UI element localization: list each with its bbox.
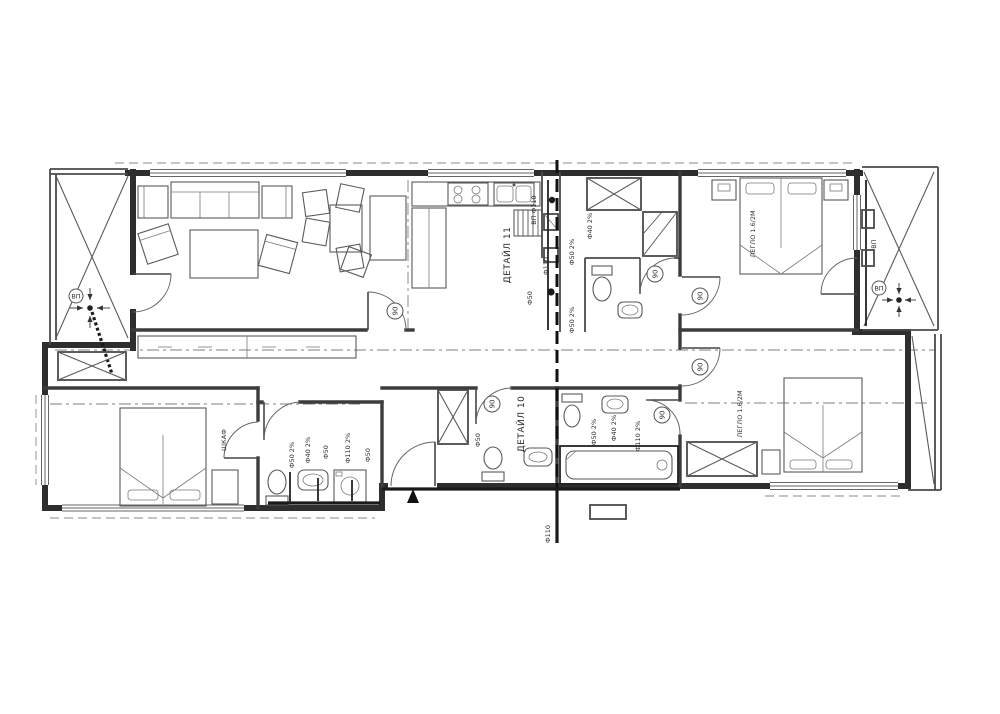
riser-label: ВП Ф110 [530,195,538,224]
sink-icon [298,470,328,490]
washing-machine-icon [334,470,366,502]
door-wc: 90 [640,258,676,294]
pipe-label: Ф40 2% [610,415,618,441]
pipe-shaft [542,172,560,332]
sink-icon [602,396,628,413]
door-bedroom-bottom-right: 90 [682,348,720,386]
entry-hall [587,178,677,256]
pipe-label: Ф40 2% [586,213,594,239]
pipe-label: Ф50 [322,445,330,459]
floor-drain-icon [882,283,916,317]
door-balcony [821,258,857,294]
nightstand [762,450,780,474]
balcony-right-lower [908,334,941,490]
living-room: 90 [133,182,413,358]
bed-size-label: ЛЕГЛО 1.6/2М [736,390,744,437]
door-bathroom-right: 90 [646,400,680,434]
low-cabinet [138,336,356,358]
double-bed: ЛЕГЛО 1.6/2М [736,378,862,472]
armchair [262,186,292,218]
nightstand [824,180,848,200]
terrace-left: ВП [50,169,128,380]
door-terrace [133,274,171,312]
door-width-label: 90 [697,363,705,372]
bathroom-right: 90 Ф50 2% Ф40 2% Ф110 2% [560,394,680,484]
windows [40,167,898,514]
sink-icon [524,448,552,466]
side-chair [258,234,297,273]
wc-room: 90 [585,258,680,332]
wardrobe [687,442,757,476]
desk [341,196,406,277]
stove-icon [448,183,488,205]
door-bedroom-bottom-left [224,422,258,458]
wardrobe-label: ШКАФ [220,429,228,451]
pipe-label: Ф110 [544,525,552,543]
terrace-riser-label: ВП [71,293,80,301]
pipe-label: Ф40 2% [304,437,312,463]
pipe-label: Ф50 2% [568,307,576,333]
pipe-label: Ф50 [474,433,482,447]
bedroom-top-right: 90 ЛЕГЛО 1.6/2М [680,172,857,348]
pipe-label: Ф50 [526,291,534,305]
floor-plan-drawing: ВП ВП [0,0,1000,714]
dresser [212,470,238,504]
door-bathroom-center: 90 [476,388,512,424]
double-bed: ЛЕГЛО 1.6/2М [740,178,822,274]
detail-11-label: ДЕТАЙЛ 11 [501,227,513,284]
double-bed [120,408,206,506]
pipe-label: Ф110 2% [634,421,642,451]
door-living: 90 [368,292,406,330]
door-width-label: 90 [489,400,497,409]
door-width-label: 90 [697,292,705,301]
toilet-icon [592,266,612,301]
nightstand [712,180,736,200]
bathroom-center: 90 ДЕТАЙЛ 10 [476,388,557,486]
exterior-walls [45,172,908,508]
dining-table [302,184,364,272]
sink-icon [618,302,642,318]
bed-size-label: ЛЕГЛО 1.6/2М [749,210,757,257]
door-bedroom-top-right: 90 [682,277,720,315]
door-width-label: 90 [652,270,660,279]
kitchen: ДЕТАЙЛ 11 [412,182,542,288]
drawing-page: ВП ВП [0,0,1000,714]
toilet-icon [562,394,582,427]
riser-label: ВП [870,239,878,248]
planter-box [58,352,126,380]
bedroom-bottom-left: ШКАФ [45,388,258,508]
side-chair [138,224,178,264]
toilet-icon [266,470,288,505]
door-width-label: 90 [392,307,400,316]
pipe-label: Ф50 [364,448,372,462]
door-width-label: 90 [659,411,667,420]
bedroom-bottom-right: 90 ЛЕГЛО 1.6/2М [680,348,862,486]
pipe-label: Ф50 2% [590,419,598,445]
pipe-label: Ф50 2% [288,442,296,468]
corridor-closet [438,390,468,444]
pipe-label: Ф110 [542,257,550,275]
door-bathroom-left [264,402,300,440]
bathroom-left: Ф50 2% Ф40 2% Ф50 Ф110 2% Ф50 [258,402,382,505]
duct-shaft [643,212,677,256]
detail-10-label: ДЕТАЙЛ 10 [515,396,527,453]
balcony-riser-label: ВП [874,285,883,293]
pipe-label: Ф50 2% [568,239,576,265]
armchair [138,186,168,218]
entrance-door [388,442,437,503]
bathtub-icon [560,446,678,484]
toilet-icon [482,447,504,481]
pipe-label: Ф110 2% [344,433,352,463]
coffee-table [190,230,258,278]
kitchen-sink-icon [494,183,534,205]
sofa [171,182,259,218]
entry-closet [587,178,641,210]
